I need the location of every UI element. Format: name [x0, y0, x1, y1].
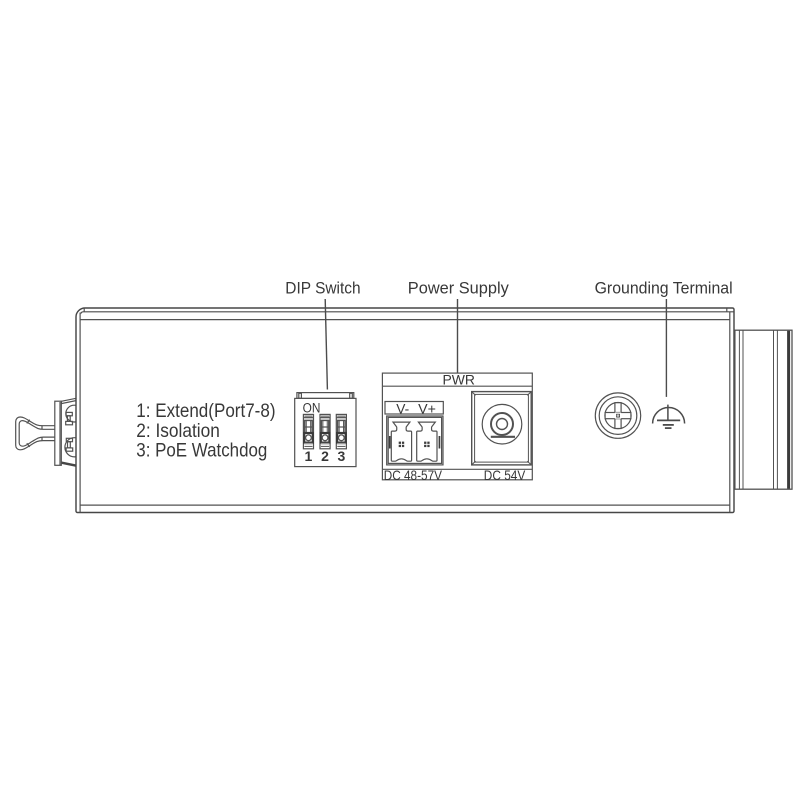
svg-text:2: 2: [321, 448, 329, 464]
svg-text:1: 1: [305, 448, 313, 464]
svg-text:PWR: PWR: [442, 372, 475, 388]
svg-text:DIP Switch: DIP Switch: [285, 278, 360, 297]
svg-text:V-: V-: [396, 400, 409, 416]
svg-text:DC 48-57V: DC 48-57V: [384, 467, 443, 483]
svg-text:DC 54V: DC 54V: [484, 467, 526, 483]
svg-text:Grounding Terminal: Grounding Terminal: [595, 278, 733, 297]
svg-text:1: Extend(Port7-8): 1: Extend(Port7-8): [136, 400, 275, 422]
svg-text:3: 3: [338, 448, 346, 464]
svg-text:ON: ON: [303, 400, 321, 415]
svg-text:Power Supply: Power Supply: [408, 278, 509, 297]
svg-text:2: Isolation: 2: Isolation: [136, 420, 220, 442]
svg-text:3: PoE Watchdog: 3: PoE Watchdog: [136, 440, 267, 462]
svg-text:V+: V+: [418, 400, 436, 416]
